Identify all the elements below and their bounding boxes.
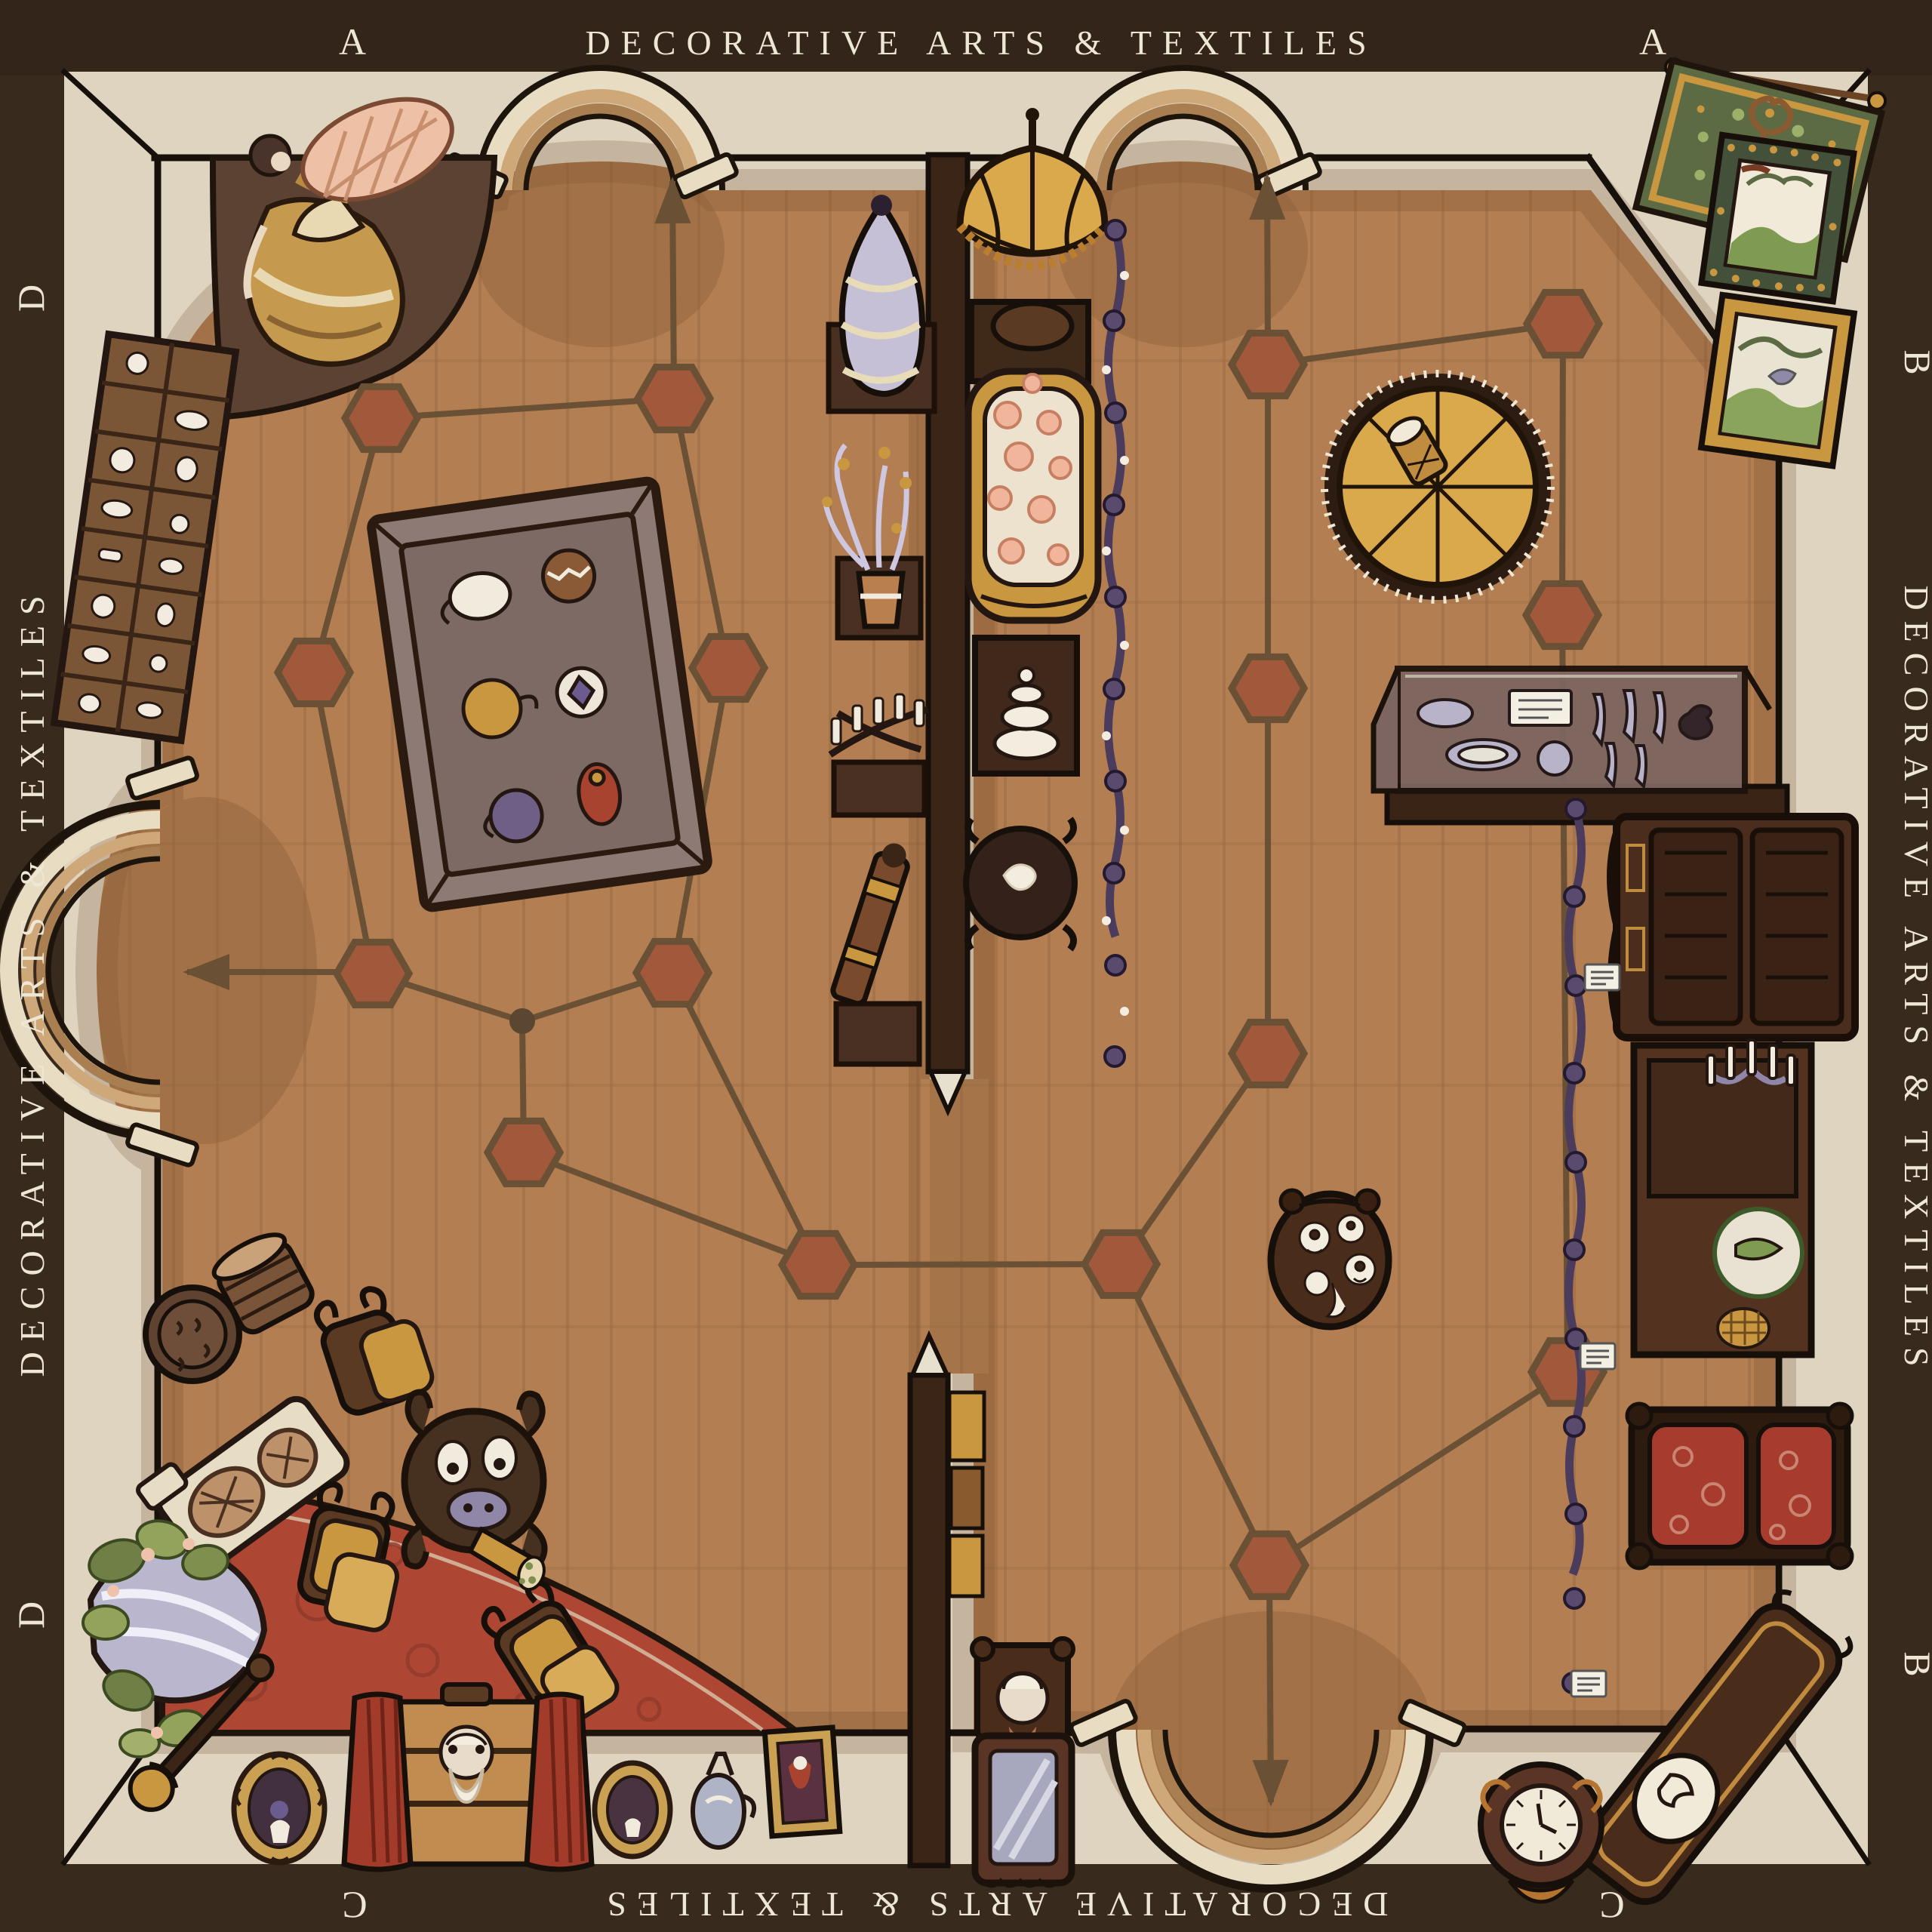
hex-space[interactable] [1527, 292, 1599, 355]
oval-portrait-2 [595, 1763, 670, 1857]
rose-settee [968, 371, 1098, 620]
hex-space[interactable] [782, 1233, 854, 1296]
framed-painting-small [764, 1727, 839, 1836]
costume-curtain-display [344, 1684, 592, 1869]
picture-frame-stack [949, 1392, 984, 1596]
vanity-chair-with-figure [972, 1638, 1073, 1749]
bottom-label-right: C [1599, 1884, 1624, 1927]
hex-space[interactable] [638, 367, 710, 429]
right-title: DECORATIVE ARTS & TEXTILES [1897, 585, 1932, 1377]
hex-space[interactable] [1232, 333, 1304, 395]
oval-portrait-1 [234, 1754, 325, 1863]
bottom-label-left: C [342, 1884, 367, 1927]
hex-space[interactable] [278, 641, 350, 703]
top-label-right: A [1639, 20, 1666, 63]
tiered-vase [975, 638, 1077, 774]
hex-space[interactable] [345, 386, 417, 449]
landscape-painting-1 [1702, 135, 1854, 302]
hex-space[interactable] [1232, 1022, 1304, 1084]
hex-space[interactable] [1526, 583, 1598, 646]
right-label-top: B [1897, 349, 1932, 374]
bottom-title: DECORATIVE ARTS & TEXTILES [596, 1885, 1388, 1924]
hex-space[interactable] [1233, 1534, 1306, 1596]
display-armoire [1610, 817, 1855, 1038]
path-edge [818, 1264, 1121, 1265]
figurine-table [1271, 1190, 1389, 1327]
left-title: DECORATIVE ARTS & TEXTILES [13, 585, 51, 1377]
junction-dot [509, 1008, 535, 1034]
hex-space[interactable] [1232, 657, 1304, 719]
hex-space[interactable] [337, 942, 409, 1004]
ceramics-display-table [371, 480, 709, 909]
side-table-with-candelabra [1634, 1040, 1811, 1355]
hex-space[interactable] [1084, 1232, 1157, 1295]
right-label-bottom: B [1897, 1651, 1932, 1676]
hex-space[interactable] [488, 1121, 560, 1183]
round-settee [1324, 374, 1551, 600]
left-label-top: D [10, 285, 52, 312]
landscape-painting-2 [1701, 295, 1854, 466]
left-label-bottom: D [10, 1601, 52, 1629]
path-edge [1562, 324, 1563, 615]
hex-space[interactable] [636, 941, 709, 1004]
cheval-mirror [975, 1736, 1072, 1886]
museum-map: DECORATIVE ARTS & TEXTILES A A DECORATIV… [0, 0, 1932, 1932]
top-title: DECORATIVE ARTS & TEXTILES [585, 23, 1377, 62]
hex-space[interactable] [692, 636, 764, 699]
damask-armchair [1627, 1404, 1852, 1568]
top-label-left: A [339, 20, 366, 63]
